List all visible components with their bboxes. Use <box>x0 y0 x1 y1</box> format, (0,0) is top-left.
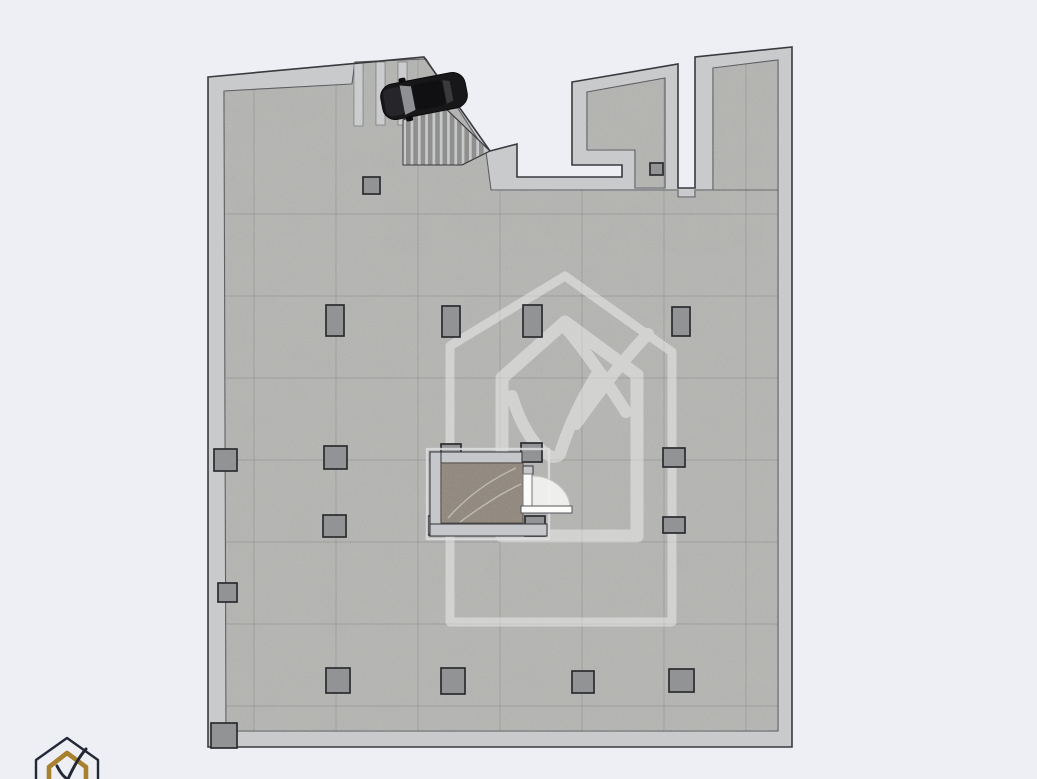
structural-column <box>323 515 346 537</box>
structural-column <box>523 305 542 337</box>
structural-column <box>672 307 690 336</box>
structural-column <box>521 443 542 462</box>
structural-column <box>663 448 685 467</box>
elevator-cab-texture <box>441 463 523 523</box>
structural-column <box>326 668 350 693</box>
door-sill <box>521 506 572 513</box>
core-wall-left <box>430 452 441 536</box>
structural-column <box>214 449 237 471</box>
structural-column <box>211 723 237 748</box>
structural-column <box>663 517 685 533</box>
door-jamb <box>523 466 533 474</box>
structural-column <box>441 668 465 694</box>
core-wall-bottom <box>430 524 547 536</box>
structural-column <box>650 163 663 175</box>
structural-column <box>442 306 460 337</box>
elevator-door-leaf <box>523 474 532 508</box>
structural-column <box>572 671 594 693</box>
floor-plan-svg <box>0 0 1037 779</box>
structural-column <box>363 177 380 194</box>
structural-column <box>326 305 344 336</box>
structural-column <box>324 446 347 469</box>
structural-column <box>218 583 237 602</box>
core-wall-top <box>430 452 522 463</box>
structural-column <box>669 669 694 692</box>
floor-plan-stage <box>0 0 1037 779</box>
